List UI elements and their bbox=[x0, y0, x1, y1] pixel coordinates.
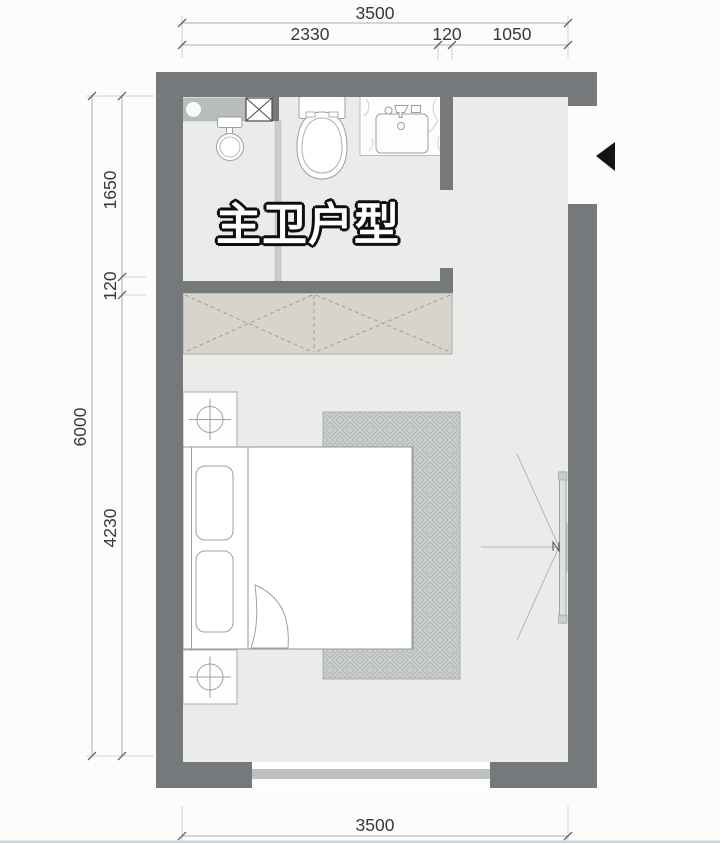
counter-hole bbox=[186, 102, 201, 117]
dim-top-seg-2: 120 bbox=[432, 24, 461, 44]
partition-wall-stub bbox=[272, 97, 279, 121]
vanity-sink bbox=[360, 97, 443, 156]
floor-plan: 3500 2330 120 1050 6000 1650 120 4230 35… bbox=[0, 0, 720, 843]
dim-left-seg-2: 120 bbox=[100, 271, 120, 300]
entrance-arrow-icon bbox=[596, 142, 615, 171]
floor-plan-drawing: 3500 2330 120 1050 6000 1650 120 4230 35… bbox=[0, 0, 720, 843]
wall-left bbox=[156, 72, 183, 788]
entrance-opening bbox=[568, 106, 597, 204]
nightstand-bottom bbox=[183, 650, 237, 704]
window bbox=[252, 762, 490, 788]
dim-top-seg-1: 2330 bbox=[291, 24, 330, 44]
duct-shaft bbox=[246, 98, 272, 121]
dim-bottom-total: 3500 bbox=[356, 815, 395, 835]
pillow bbox=[196, 466, 233, 540]
faucet-shelf bbox=[218, 117, 243, 128]
wardrobe bbox=[183, 293, 452, 354]
bathroom-bottom-wall bbox=[183, 281, 453, 293]
dim-left-total: 6000 bbox=[70, 407, 90, 446]
toilet bbox=[297, 97, 347, 180]
window-glass-band bbox=[252, 769, 490, 779]
pillow bbox=[196, 551, 233, 632]
dim-top-total: 3500 bbox=[356, 3, 395, 23]
bathroom-right-wall bbox=[440, 97, 453, 190]
wall-top bbox=[156, 72, 597, 97]
nightstand-top bbox=[183, 392, 237, 447]
plan-title: 主卫户型 bbox=[216, 199, 400, 251]
double-bed bbox=[183, 447, 413, 649]
round-washbasin bbox=[217, 117, 244, 161]
dim-top-seg-3: 1050 bbox=[493, 24, 532, 44]
dim-left-seg-1: 1650 bbox=[100, 170, 120, 209]
dim-left-seg-3: 4230 bbox=[100, 508, 120, 547]
tv-screen bbox=[560, 472, 567, 623]
